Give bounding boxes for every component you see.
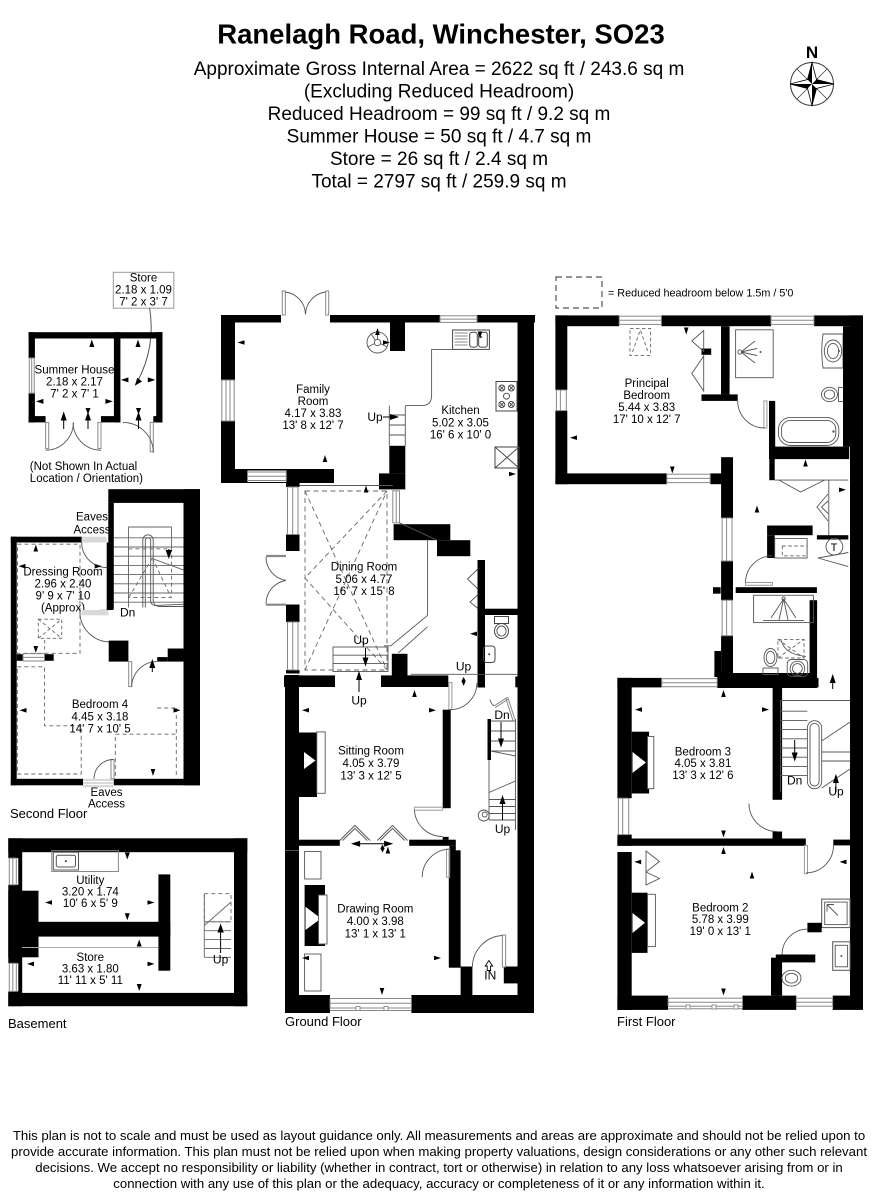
svg-text:Bedroom: Bedroom [623,390,670,402]
svg-text:IN: IN [484,969,496,983]
svg-text:Family: Family [296,384,330,396]
svg-text:16' 7 x 15' 8: 16' 7 x 15' 8 [333,586,394,598]
svg-text:Location / Orientation): Location / Orientation) [30,473,143,485]
svg-text:3.20 x 1.74: 3.20 x 1.74 [62,887,120,899]
svg-text:N: N [806,43,818,62]
svg-text:(Not Shown In Actual: (Not Shown In Actual [30,461,137,473]
svg-text:17' 10 x 12' 7: 17' 10 x 12' 7 [613,414,681,426]
svg-text:Up: Up [213,953,229,967]
svg-text:Dn: Dn [120,606,135,620]
svg-text:Ranelagh Road, Winchester, SO2: Ranelagh Road, Winchester, SO23 [217,19,665,50]
svg-text:Bedroom 3: Bedroom 3 [675,747,731,759]
svg-text:19' 0 x 13' 1: 19' 0 x 13' 1 [690,926,751,938]
svg-text:Bedroom 2: Bedroom 2 [692,903,748,915]
svg-text:Up: Up [367,410,383,424]
svg-text:Sitting Room: Sitting Room [338,746,404,758]
svg-text:Summer House: Summer House [35,364,115,376]
svg-text:Up: Up [495,822,511,836]
svg-text:3.63 x 1.80: 3.63 x 1.80 [62,964,119,976]
svg-text:7' 2 x 7' 1: 7' 2 x 7' 1 [50,388,99,400]
svg-text:9' 9 x 7' 10: 9' 9 x 7' 10 [36,590,91,602]
svg-text:13' 3 x 12' 5: 13' 3 x 12' 5 [340,771,401,783]
svg-text:13' 1 x 13' 1: 13' 1 x 13' 1 [345,929,406,941]
svg-text:Utility: Utility [76,875,104,887]
svg-text:Principal: Principal [625,378,669,390]
svg-text:Eaves: Eaves [91,787,123,799]
svg-text:T: T [831,542,838,554]
svg-text:Up: Up [353,633,369,647]
svg-text:Basement: Basement [8,1016,67,1031]
svg-text:provide accurate information.: provide accurate information. This plan … [11,1144,867,1159]
svg-text:= Reduced headroom below 1.5m: = Reduced headroom below 1.5m / 5'0 [608,288,793,300]
svg-text:7' 2 x 3' 7: 7' 2 x 3' 7 [119,297,168,309]
svg-text:Store: Store [77,952,105,964]
svg-text:decisions. We accept no respon: decisions. We accept no responsibility o… [35,1160,842,1175]
svg-text:2.96 x 2.40: 2.96 x 2.40 [35,578,92,590]
svg-text:Reduced Headroom = 99 sq ft /: Reduced Headroom = 99 sq ft / 9.2 sq m [268,104,611,125]
svg-text:Room: Room [298,396,329,408]
svg-text:5.44 x 3.83: 5.44 x 3.83 [618,402,675,414]
svg-text:Store = 26 sq ft / 2.4 sq m: Store = 26 sq ft / 2.4 sq m [330,149,548,170]
svg-text:16' 6 x 10' 0: 16' 6 x 10' 0 [430,430,491,442]
svg-text:Dining Room: Dining Room [331,562,397,574]
svg-text:Approximate Gross Internal Are: Approximate Gross Internal Area = 2622 s… [194,59,685,80]
svg-text:connection with any use of thi: connection with any use of this plan or … [113,1176,764,1191]
svg-text:(Approx): (Approx) [41,602,85,614]
svg-text:4.45 x 3.18: 4.45 x 3.18 [72,711,129,723]
svg-text:Dn: Dn [787,774,802,788]
svg-text:4.00 x 3.98: 4.00 x 3.98 [347,916,404,928]
svg-text:Store: Store [130,273,158,285]
svg-text:Eaves: Eaves [76,512,108,524]
svg-text:Up: Up [351,694,367,708]
svg-text:Dressing Room: Dressing Room [23,566,102,578]
svg-text:Total = 2797 sq ft / 259.9 sq: Total = 2797 sq ft / 259.9 sq m [311,172,566,193]
svg-text:Access: Access [88,799,125,811]
svg-text:2.18 x 1.09: 2.18 x 1.09 [115,284,172,296]
svg-text:Summer House = 50 sq ft / 4.7: Summer House = 50 sq ft / 4.7 sq m [287,127,592,148]
svg-text:Bedroom 4: Bedroom 4 [72,699,129,711]
svg-text:4.05 x 3.79: 4.05 x 3.79 [343,758,400,770]
svg-text:4.17 x 3.83: 4.17 x 3.83 [285,408,342,420]
svg-text:Up: Up [456,660,472,674]
svg-text:Drawing Room: Drawing Room [337,904,413,916]
svg-text:11' 11 x 5' 11: 11' 11 x 5' 11 [58,975,123,987]
svg-text:(Excluding Reduced Headroom): (Excluding Reduced Headroom) [304,82,574,103]
svg-text:2.18 x 2.17: 2.18 x 2.17 [46,376,103,388]
svg-text:Dn: Dn [494,708,509,722]
svg-text:13' 8 x 12' 7: 13' 8 x 12' 7 [282,420,343,432]
svg-text:Ground Floor: Ground Floor [285,1014,362,1029]
svg-text:First Floor: First Floor [617,1014,676,1029]
svg-text:5.06 x 4.77: 5.06 x 4.77 [336,574,393,586]
svg-text:14' 7 x 10' 5: 14' 7 x 10' 5 [69,724,130,736]
svg-text:Kitchen: Kitchen [441,405,479,417]
svg-text:5.78 x 3.99: 5.78 x 3.99 [692,914,749,926]
svg-text:Second Floor: Second Floor [10,806,88,821]
svg-text:10' 6 x 5' 9: 10' 6 x 5' 9 [63,898,118,910]
svg-text:13' 3 x 12' 6: 13' 3 x 12' 6 [672,770,733,782]
svg-text:Access: Access [73,525,110,537]
svg-text:This plan is not to scale and: This plan is not to scale and must be us… [13,1128,865,1143]
svg-text:5.02 x 3.05: 5.02 x 3.05 [432,418,489,430]
svg-text:4.05 x 3.81: 4.05 x 3.81 [674,758,731,770]
